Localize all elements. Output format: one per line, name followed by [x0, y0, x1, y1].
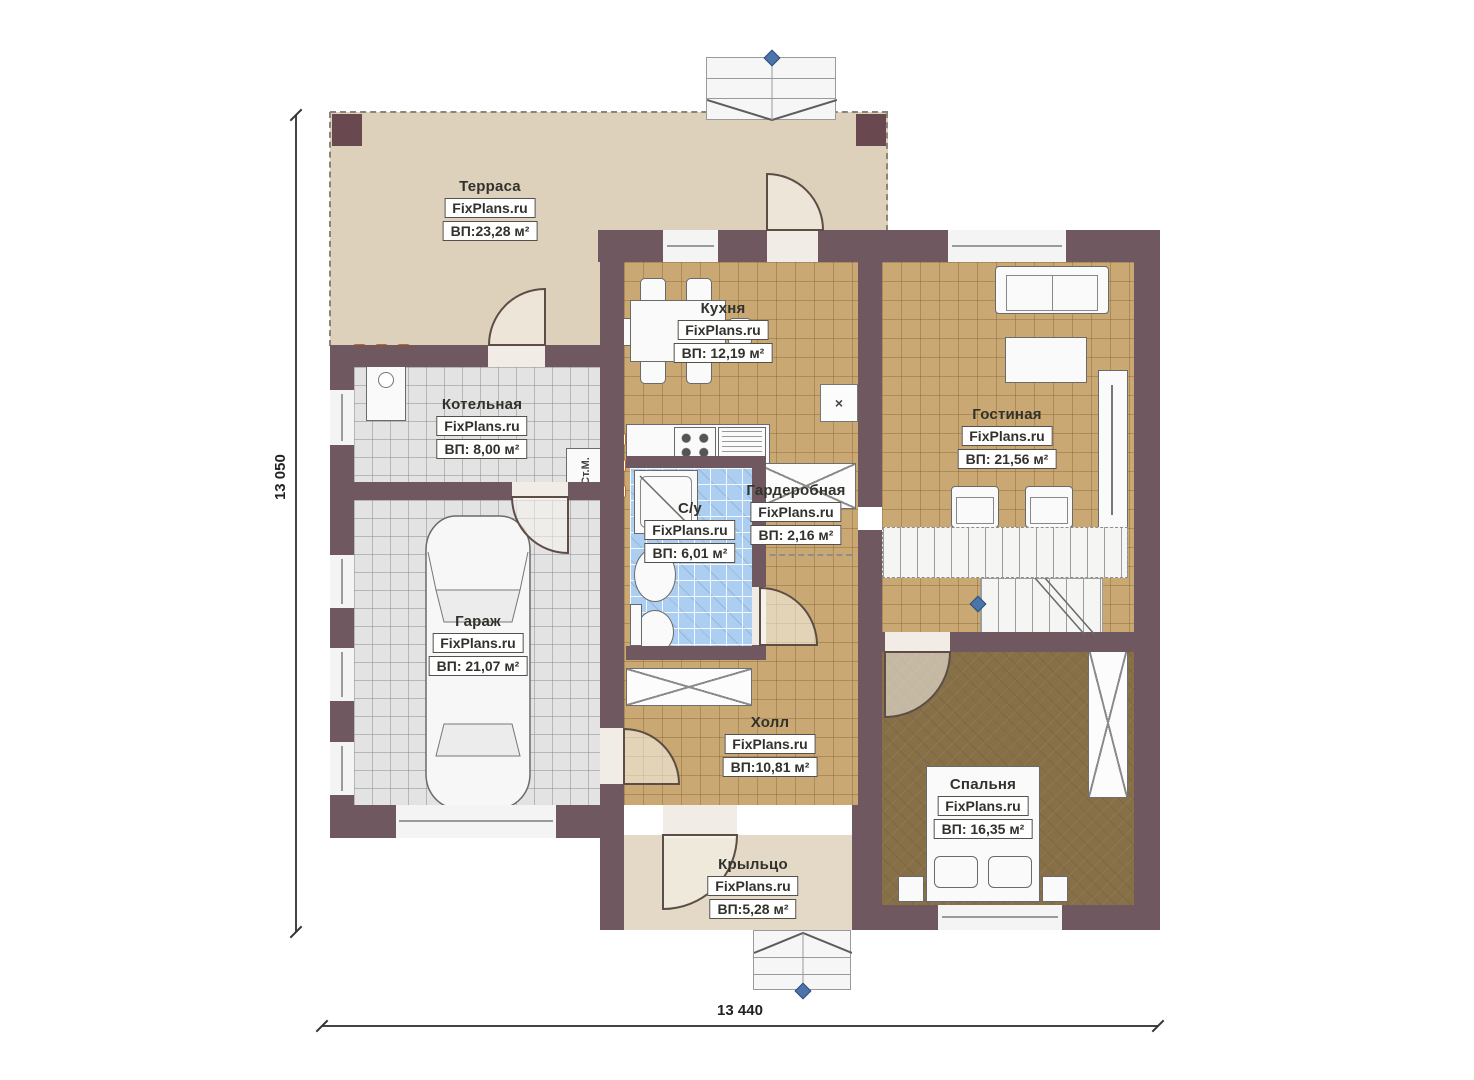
- room-watermark: FixPlans.ru: [937, 796, 1028, 816]
- room-label-hall: Холл FixPlans.ru ВП:10,81 м²: [723, 714, 818, 777]
- room-watermark: FixPlans.ru: [644, 520, 735, 540]
- room-name: Гостиная: [972, 406, 1041, 423]
- wall: [330, 345, 624, 367]
- floor-plan: Ст.М. ×: [0, 0, 1474, 1080]
- nightstand: [1042, 876, 1068, 902]
- window: [948, 230, 1066, 262]
- terrace-dashed-edge-right: [886, 112, 888, 231]
- staircase-upper-flight: [882, 527, 1128, 578]
- toilet-tank: [630, 604, 642, 646]
- door-opening: [885, 632, 950, 652]
- window: [663, 230, 718, 262]
- bedroom-wardrobe-hatch: [1088, 648, 1128, 798]
- window: [330, 742, 354, 795]
- room-name: Гараж: [455, 613, 501, 630]
- room-watermark: FixPlans.ru: [436, 416, 527, 436]
- boiler-unit-dial: [378, 372, 394, 388]
- room-area: ВП: 2,16 м²: [751, 525, 842, 545]
- room-watermark: FixPlans.ru: [707, 876, 798, 896]
- door-opening: [488, 345, 545, 367]
- terrace-floor-left: [330, 230, 602, 347]
- armchair: [1025, 486, 1073, 528]
- staircase-lower-flight: [980, 578, 1103, 635]
- room-area: ВП: 16,35 м²: [934, 819, 1033, 839]
- terrace-dashed-edge-left: [329, 112, 331, 346]
- room-label-living: Гостиная FixPlans.ru ВП: 21,56 м²: [958, 406, 1057, 469]
- room-name: Холл: [751, 714, 789, 731]
- wall: [626, 456, 766, 468]
- armchair: [951, 486, 999, 528]
- garage-gate: [396, 805, 556, 838]
- window: [330, 555, 354, 608]
- terrace-post-right: [856, 114, 886, 146]
- room-area: ВП: 6,01 м²: [645, 543, 736, 563]
- room-watermark: FixPlans.ru: [724, 734, 815, 754]
- door-opening: [752, 587, 766, 645]
- room-name: С/у: [678, 500, 702, 517]
- window: [938, 905, 1062, 930]
- room-label-porch: Крыльцо FixPlans.ru ВП:5,28 м²: [707, 856, 798, 919]
- wall: [600, 230, 624, 930]
- room-label-wardrobe: Гардеробная FixPlans.ru ВП: 2,16 м²: [746, 482, 845, 545]
- room-area: ВП:5,28 м²: [710, 899, 797, 919]
- room-label-garage: Гараж FixPlans.ru ВП: 21,07 м²: [429, 613, 528, 676]
- wardrobe-rod-dashed: [760, 554, 852, 556]
- vent-mark: ×: [835, 395, 843, 411]
- room-watermark: FixPlans.ru: [444, 198, 535, 218]
- door-opening: [767, 230, 818, 262]
- pillow: [934, 856, 978, 888]
- door-opening: [512, 482, 568, 500]
- tv-unit: [1098, 370, 1128, 528]
- vent-box: ×: [820, 384, 858, 422]
- wall: [568, 482, 624, 500]
- room-watermark: FixPlans.ru: [677, 320, 768, 340]
- room-label-kitchen: Кухня FixPlans.ru ВП: 12,19 м²: [674, 300, 773, 363]
- sofa: [995, 266, 1109, 314]
- coffee-table: [1005, 337, 1087, 383]
- room-area: ВП: 8,00 м²: [437, 439, 528, 459]
- washing-machine-label: Ст.М.: [580, 457, 592, 485]
- terrace-post-left: [332, 114, 362, 146]
- room-label-terrace: Терраса FixPlans.ru ВП:23,28 м²: [443, 178, 538, 241]
- porch-steps-marker: [753, 930, 851, 990]
- room-name: Котельная: [442, 396, 522, 413]
- room-name: Гардеробная: [746, 482, 845, 499]
- room-name: Кухня: [701, 300, 746, 317]
- room-name: Спальня: [950, 776, 1016, 793]
- dimension-label-bottom: 13 440: [717, 1002, 763, 1019]
- room-label-boiler: Котельная FixPlans.ru ВП: 8,00 м²: [436, 396, 527, 459]
- room-label-bathroom: С/у FixPlans.ru ВП: 6,01 м²: [644, 500, 735, 563]
- window: [330, 648, 354, 701]
- room-area: ВП: 21,07 м²: [429, 656, 528, 676]
- dimension-line-left: [295, 115, 297, 932]
- door-opening: [663, 805, 737, 838]
- room-watermark: FixPlans.ru: [750, 502, 841, 522]
- room-area: ВП:10,81 м²: [723, 757, 818, 777]
- dimension-line-bottom: [322, 1025, 1158, 1027]
- room-area: ВП:23,28 м²: [443, 221, 538, 241]
- room-watermark: FixPlans.ru: [961, 426, 1052, 446]
- dimension-label-left: 13 050: [272, 454, 289, 500]
- room-area: ВП: 21,56 м²: [958, 449, 1057, 469]
- wall: [626, 646, 766, 660]
- window: [330, 390, 354, 445]
- room-label-bedroom: Спальня FixPlans.ru ВП: 16,35 м²: [934, 776, 1033, 839]
- door-opening: [600, 728, 624, 784]
- room-name: Терраса: [459, 178, 521, 195]
- wall: [858, 256, 882, 507]
- wall: [852, 805, 880, 930]
- hall-cabinet-hatch: [626, 668, 752, 706]
- wall: [330, 482, 512, 500]
- room-area: ВП: 12,19 м²: [674, 343, 773, 363]
- terrace-floor: [330, 112, 888, 232]
- room-watermark: FixPlans.ru: [432, 633, 523, 653]
- nightstand: [898, 876, 924, 902]
- wall: [1134, 230, 1160, 930]
- room-name: Крыльцо: [718, 856, 788, 873]
- pillow: [988, 856, 1032, 888]
